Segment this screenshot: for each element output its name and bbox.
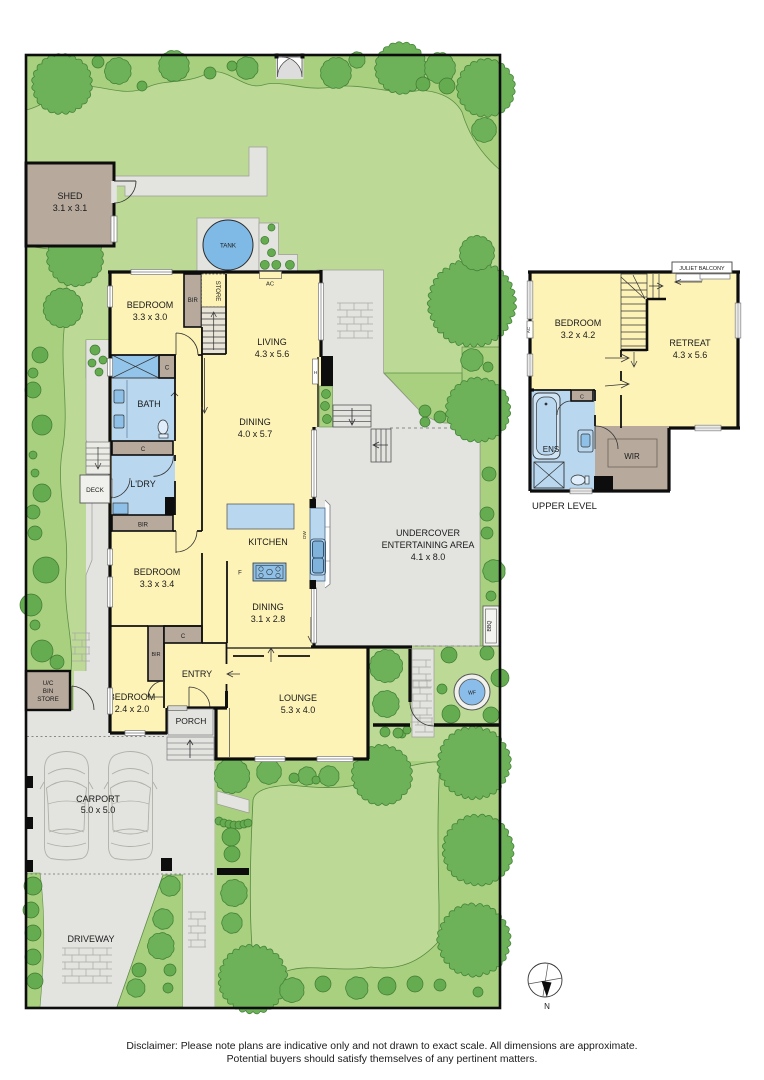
- svg-text:U/C: U/C: [43, 680, 54, 687]
- svg-text:C: C: [141, 447, 146, 453]
- svg-text:STORE: STORE: [37, 696, 59, 703]
- svg-text:KITCHEN: KITCHEN: [248, 537, 288, 547]
- svg-text:RETREAT: RETREAT: [669, 338, 711, 348]
- svg-text:F: F: [238, 571, 242, 577]
- svg-text:DRIVEWAY: DRIVEWAY: [67, 934, 114, 944]
- svg-text:AC: AC: [266, 282, 274, 288]
- svg-text:4.1 x 8.0: 4.1 x 8.0: [411, 552, 446, 562]
- svg-text:3.1 x 2.8: 3.1 x 2.8: [251, 614, 286, 624]
- svg-text:UPPER LEVEL: UPPER LEVEL: [532, 501, 597, 512]
- svg-text:BBQ: BBQ: [487, 621, 493, 632]
- svg-text:TANK: TANK: [220, 243, 237, 250]
- svg-text:4.3 x 5.6: 4.3 x 5.6: [255, 349, 290, 359]
- svg-text:DINING: DINING: [239, 417, 271, 427]
- svg-text:BEDROOM: BEDROOM: [134, 567, 181, 577]
- svg-text:Potential buyers should satisf: Potential buyers should satisfy themselv…: [227, 1054, 538, 1065]
- svg-text:SHED: SHED: [57, 191, 83, 201]
- svg-text:L'DRY: L'DRY: [130, 479, 156, 489]
- svg-text:BEDROOM: BEDROOM: [555, 318, 602, 328]
- svg-text:WF: WF: [468, 691, 476, 697]
- svg-text:DW: DW: [302, 531, 307, 539]
- svg-text:WIR: WIR: [624, 452, 640, 461]
- svg-text:DECK: DECK: [86, 487, 104, 494]
- svg-text:ENS: ENS: [543, 445, 559, 454]
- svg-text:DINING: DINING: [252, 602, 284, 612]
- svg-text:H: H: [314, 370, 317, 375]
- svg-text:LIVING: LIVING: [257, 337, 287, 347]
- svg-text:BIN: BIN: [43, 688, 54, 695]
- svg-text:STORE: STORE: [214, 281, 220, 302]
- svg-text:LOUNGE: LOUNGE: [279, 693, 317, 703]
- svg-text:4.3 x 5.6: 4.3 x 5.6: [673, 350, 708, 360]
- svg-text:2.4 x 2.0: 2.4 x 2.0: [115, 704, 150, 714]
- svg-text:AC: AC: [526, 327, 531, 333]
- svg-text:UNDERCOVER: UNDERCOVER: [396, 528, 461, 538]
- svg-text:Disclaimer: Please note plans: Disclaimer: Please note plans are indica…: [126, 1041, 637, 1052]
- svg-text:3.3 x 3.4: 3.3 x 3.4: [140, 579, 175, 589]
- svg-text:5.0 x 5.0: 5.0 x 5.0: [81, 805, 116, 815]
- svg-text:C: C: [165, 366, 170, 372]
- svg-text:BATH: BATH: [137, 399, 160, 409]
- svg-text:3.3 x 3.0: 3.3 x 3.0: [133, 312, 168, 322]
- svg-text:N: N: [544, 1002, 550, 1011]
- svg-text:PORCH: PORCH: [176, 716, 207, 726]
- svg-text:BEDROOM: BEDROOM: [127, 300, 174, 310]
- svg-text:4.0 x 5.7: 4.0 x 5.7: [238, 429, 273, 439]
- svg-text:3.1 x 3.1: 3.1 x 3.1: [53, 203, 88, 213]
- svg-text:BIR: BIR: [188, 298, 199, 304]
- svg-text:ENTERTAINING AREA: ENTERTAINING AREA: [382, 540, 475, 550]
- svg-text:CARPORT: CARPORT: [76, 794, 120, 804]
- svg-text:JULIET BALCONY: JULIET BALCONY: [679, 266, 725, 272]
- svg-text:3.2 x 4.2: 3.2 x 4.2: [561, 330, 596, 340]
- svg-text:BIR: BIR: [152, 652, 161, 658]
- svg-text:5.3 x 4.0: 5.3 x 4.0: [281, 705, 316, 715]
- svg-text:C: C: [181, 634, 186, 640]
- svg-text:ENTRY: ENTRY: [182, 669, 212, 679]
- svg-text:BIR: BIR: [138, 523, 149, 529]
- svg-text:C: C: [580, 395, 584, 401]
